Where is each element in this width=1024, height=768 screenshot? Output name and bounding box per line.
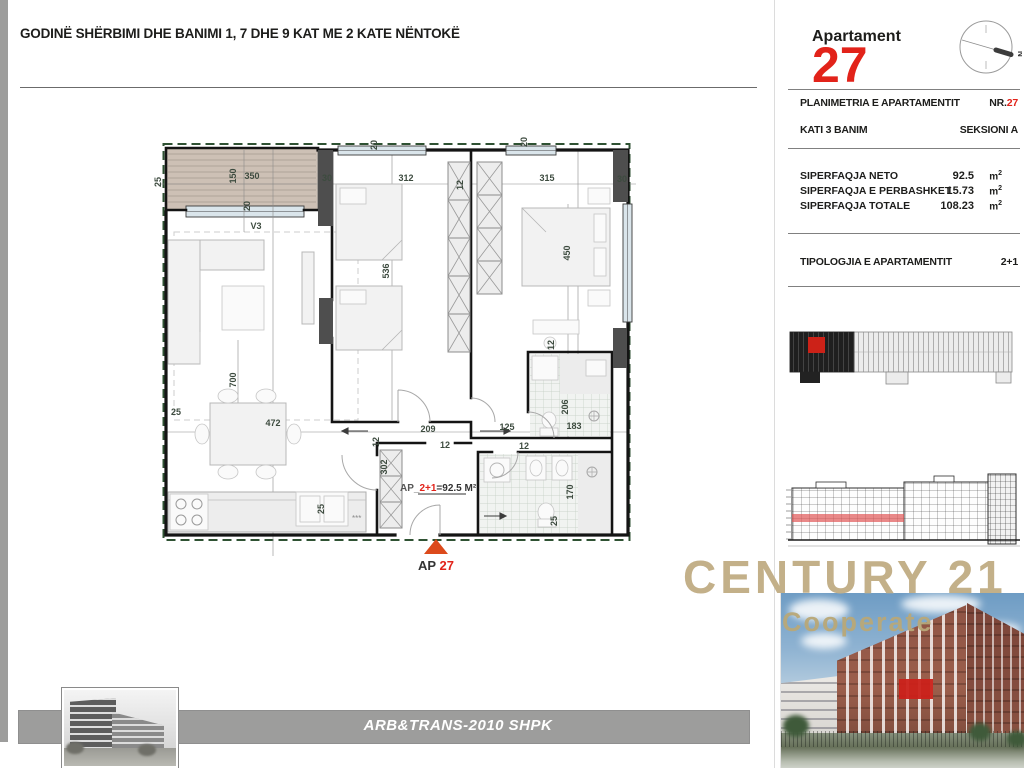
dimension-label: 12 (519, 441, 529, 451)
area-totale-value: 108.23 (940, 200, 974, 212)
dimension-label: 700 (228, 372, 238, 387)
typology-value: 2+1 (1001, 256, 1018, 268)
dimension-label: 25 (316, 504, 326, 514)
dimension-label: 209 (420, 424, 435, 434)
dimension-label: 12 (440, 440, 450, 450)
area-totale-label: SIPERFAQJA TOTALE (800, 200, 910, 212)
dimension-label: 472 (265, 418, 280, 428)
area-row-totale: SIPERFAQJA TOTALE 108.23 m2 (800, 200, 1018, 212)
sheet-title: GODINË SHËRBIMI DHE BANIMI 1, 7 DHE 9 KA… (20, 26, 765, 41)
tv-unit (302, 252, 314, 324)
apartment-number: 27 (812, 40, 868, 90)
coffee-table (222, 286, 264, 330)
dimension-label: 312 (398, 173, 413, 183)
elevation-blocks (792, 474, 1016, 544)
dimension-label: 25 (153, 177, 163, 187)
compass-icon: N (952, 16, 1022, 84)
dimension-label: 25 (171, 407, 181, 417)
tree (783, 715, 809, 737)
dimension-label: 12 (371, 437, 381, 447)
bedroom2-bed (522, 188, 610, 349)
planimetria-label: PLANIMETRIA E APARTAMENTIT (800, 97, 960, 109)
unit-area-label: AP_2+1=92.5 M² (400, 483, 477, 494)
tree (969, 723, 991, 741)
left-edge-bar (0, 0, 8, 742)
dimension-label: 350 (244, 171, 259, 181)
dimension-label: 183 (566, 421, 581, 431)
panel-rule-4 (788, 286, 1020, 287)
title-rule (20, 87, 757, 88)
dimension-label: V3 (250, 221, 261, 231)
dishwasher-marks: *** (352, 514, 361, 523)
area-perbashket-label: SIPERFAQJA E PERBASHKET (800, 185, 951, 197)
entrance-arrow (424, 539, 448, 554)
panel-row-typology: TIPOLOGJIA E APARTAMENTIT 2+1 (800, 256, 1018, 268)
seksioni-value: SEKSIONI A (960, 124, 1018, 136)
balcony (166, 148, 318, 210)
dining-table (195, 389, 301, 479)
panel-rule-2 (788, 148, 1020, 149)
dimension-label: 20 (369, 140, 379, 150)
dimension-label: 150 (228, 168, 238, 183)
key-plan-tab-right (996, 372, 1011, 383)
panel-rule-3 (788, 233, 1020, 234)
dimension-label: 12 (455, 180, 465, 190)
panel-row-planimetria: PLANIMETRIA E APARTAMENTIT NR.27 (800, 97, 1018, 109)
area-neto-unit: m2 (989, 170, 1002, 182)
dimension-label: 125 (499, 422, 514, 432)
photo-highlighted-apartment (899, 679, 933, 699)
floor-plan: *** (140, 118, 652, 588)
area-perbashket-unit: m2 (989, 185, 1002, 197)
dimension-label: 25 (549, 516, 559, 526)
elevation-floor-highlight (792, 514, 904, 522)
key-plan-tab-left (800, 372, 820, 383)
kitchen-counter: *** (168, 492, 366, 532)
dimension-label: 206 (560, 399, 570, 414)
dimension-label: 20 (242, 201, 252, 211)
area-totale-unit: m2 (989, 200, 1002, 212)
dimension-label: 302 (379, 459, 389, 474)
key-plan (786, 326, 1022, 390)
dimension-label: 536 (381, 263, 391, 278)
panel-rule-1 (788, 89, 1020, 90)
area-neto-value: 92.5 (953, 170, 974, 182)
area-row-neto: SIPERFAQJA NETO 92.5 m2 (800, 170, 1018, 182)
apartment-nr-value: NR.27 (989, 97, 1018, 109)
century21-logo-text: CENTURY 21 (683, 550, 1024, 604)
dimension-label: 450 (562, 245, 572, 260)
panel-row-kati: KATI 3 BANIM SEKSIONI A (800, 124, 1018, 136)
entrance-label: AP 27 (418, 558, 454, 573)
elevation-axis-ticks (786, 490, 791, 539)
dimension-label: 315 (539, 173, 554, 183)
dimension-label: 30 (322, 173, 332, 183)
dimension-label: 12 (546, 340, 556, 350)
building-thumbnail-photo (62, 688, 178, 768)
dimension-label: 20 (519, 137, 529, 147)
cooperate-logo-text: Cooperate (782, 607, 934, 638)
compass-north-label: N (1016, 51, 1022, 57)
area-perbashket-value: 15.73 (946, 185, 974, 197)
dimension-label: 30 (617, 174, 627, 184)
tree (1007, 731, 1024, 747)
kati-label: KATI 3 BANIM (800, 124, 867, 136)
dimension-label: 170 (565, 484, 575, 499)
typology-label: TIPOLOGJIA E APARTAMENTIT (800, 256, 952, 268)
plan-sheet: { "sheet": { "title": "GODINË SHËRBIMI D… (0, 0, 1024, 768)
key-plan-highlighted-unit (808, 337, 825, 353)
area-neto-label: SIPERFAQJA NETO (800, 170, 898, 182)
area-row-perbashket: SIPERFAQJA E PERBASHKET 15.73 m2 (800, 185, 1018, 197)
building-elevation (786, 470, 1022, 556)
key-plan-tab-mid (886, 372, 908, 384)
panel-divider-line (774, 0, 775, 768)
